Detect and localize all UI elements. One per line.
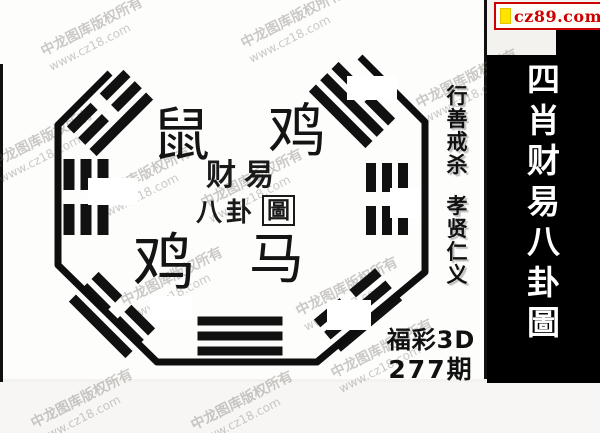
site-badge-text: cz89.com xyxy=(514,7,600,26)
moral-column-top: 行善戒杀 xyxy=(442,84,472,176)
site-badge: cz89.com xyxy=(494,2,600,30)
censor-box xyxy=(327,300,371,330)
yellow-square-icon xyxy=(500,8,511,24)
zodiac-top-left: 鼠 xyxy=(152,106,210,164)
moral-column-bottom: 孝贤仁义 xyxy=(442,194,472,286)
censor-box xyxy=(390,188,420,218)
censor-box xyxy=(347,76,397,100)
seal-title-line2: 八卦 圖 xyxy=(196,192,295,229)
seal-title-line1: 财易 xyxy=(204,150,284,194)
censor-box xyxy=(150,296,192,320)
trigram-northwest xyxy=(67,70,153,156)
trigram-south xyxy=(198,317,283,356)
side-panel-title: 四肖财易八卦圖 xyxy=(487,60,600,344)
censor-box xyxy=(88,178,138,205)
seal-line2-prefix: 八卦 xyxy=(196,192,256,229)
bagua-chart-image: 中龙图库版权所有www.cz18.com中龙图库版权所有www.cz18.com… xyxy=(0,0,600,433)
zodiac-bottom-left: 鸡 xyxy=(133,232,195,294)
zodiac-bottom-right: 马 xyxy=(249,232,304,287)
seal-line2-boxed-char: 圖 xyxy=(262,195,295,226)
issue-number: 277期 xyxy=(381,350,481,386)
